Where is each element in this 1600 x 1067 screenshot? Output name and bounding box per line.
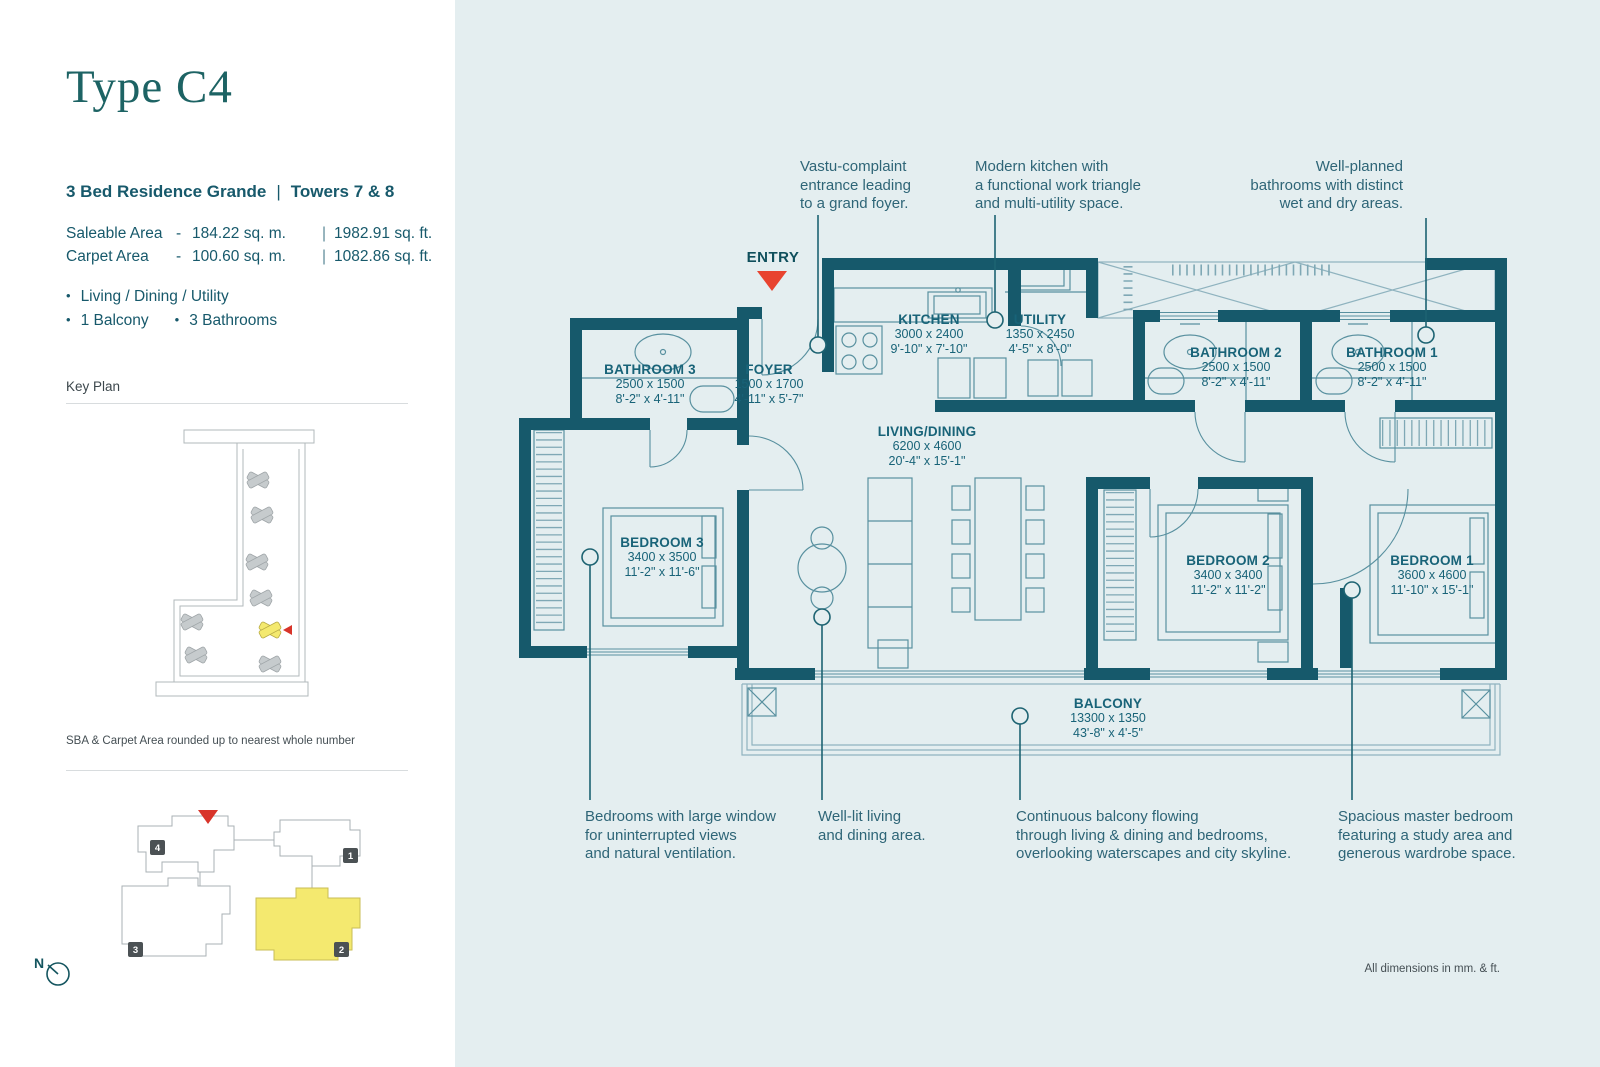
pipe: | xyxy=(314,225,334,243)
room-label-bedroom-1: BEDROOM 1 3600 x 4600 11'-10" x 15'-1" xyxy=(1390,553,1474,598)
annotation-bathrooms: Well-planned bathrooms with distinct wet… xyxy=(1203,158,1403,214)
carpet-area-imperial: 1082.86 sq. ft. xyxy=(334,248,432,266)
svg-text:4: 4 xyxy=(155,843,161,854)
room-label-kitchen: KITCHEN 3000 x 2400 9'-10" x 7'-10" xyxy=(891,312,968,357)
svg-text:N: N xyxy=(34,955,44,971)
feature-bathrooms: 3 Bathrooms xyxy=(189,312,277,329)
dash: - xyxy=(176,248,192,266)
carpet-area-label: Carpet Area xyxy=(66,248,176,266)
dimensions-note: All dimensions in mm. & ft. xyxy=(1200,963,1500,975)
annotation-master-bedroom: Spacious master bedroom featuring a stud… xyxy=(1338,808,1516,864)
entry-arrow-icon xyxy=(757,271,787,291)
features-line-1: •Living / Dining / Utility xyxy=(66,288,229,306)
north-indicator: N xyxy=(34,955,69,985)
room-label-bathroom-2: BATHROOM 2 2500 x 1500 8'-2" x 4'-11" xyxy=(1190,345,1282,390)
room-label-bathroom-1: BATHROOM 1 2500 x 1500 8'-2" x 4'-11" xyxy=(1346,345,1438,390)
saleable-area-label: Saleable Area xyxy=(66,225,176,243)
floor-plan xyxy=(519,215,1507,800)
room-label-living-dining: LIVING/DINING 6200 x 4600 20'-4" x 15'-1… xyxy=(878,424,977,469)
divider xyxy=(66,770,408,771)
svg-text:1: 1 xyxy=(348,851,354,862)
feature-balcony: 1 Balcony xyxy=(81,312,149,329)
residence-subtitle: 3 Bed Residence Grande|Towers 7 & 8 xyxy=(66,182,394,202)
site-location-arrow-icon xyxy=(283,625,292,635)
annotation-balcony: Continuous balcony flowing through livin… xyxy=(1016,808,1291,864)
carpet-area-metric: 100.60 sq. m. xyxy=(192,248,314,266)
site-key-plan xyxy=(156,430,314,696)
towers-label: Towers 7 & 8 xyxy=(291,182,395,201)
annotation-kitchen: Modern kitchen with a functional work tr… xyxy=(975,158,1141,214)
bullet-icon: • xyxy=(66,288,71,303)
bullet-icon: • xyxy=(175,312,180,327)
floor-key-plan: 4 1 3 2 xyxy=(122,810,360,960)
bullet-icon: • xyxy=(66,312,71,327)
residence-type: 3 Bed Residence Grande xyxy=(66,182,266,201)
site-buildings xyxy=(180,471,281,672)
carpet-area-row: Carpet Area - 100.60 sq. m. | 1082.86 sq… xyxy=(66,248,432,266)
annotation-living: Well-lit living and dining area. xyxy=(818,808,926,845)
saleable-area-metric: 184.22 sq. m. xyxy=(192,225,314,243)
saleable-area-imperial: 1982.91 sq. ft. xyxy=(334,225,432,243)
pipe: | xyxy=(314,248,334,266)
entry-label: ENTRY xyxy=(740,249,806,266)
room-label-bathroom-3: BATHROOM 3 2500 x 1500 8'-2" x 4'-11" xyxy=(604,362,696,407)
saleable-area-row: Saleable Area - 184.22 sq. m. | 1982.91 … xyxy=(66,225,432,243)
subtitle-separator: | xyxy=(276,182,280,201)
feature-living-dining-utility: Living / Dining / Utility xyxy=(81,288,229,305)
brochure-page: 4 1 3 2 N Type C4 3 Bed Residence Grande… xyxy=(0,0,1600,1067)
annotation-entrance: Vastu-complaint entrance leading to a gr… xyxy=(800,158,911,214)
room-label-foyer: FOYER 1500 x 1700 4'-11" x 5'-7" xyxy=(734,362,803,407)
room-label-balcony: BALCONY 13300 x 1350 43'-8" x 4'-5" xyxy=(1070,696,1146,741)
room-label-bedroom-3: BEDROOM 3 3400 x 3500 11'-2" x 11'-6" xyxy=(620,535,704,580)
annotation-bedrooms: Bedrooms with large window for uninterru… xyxy=(585,808,776,864)
room-label-utility: UTILITY 1350 x 2450 4'-5" x 8'-0" xyxy=(1006,312,1075,357)
key-plan-label: Key Plan xyxy=(66,379,120,394)
site-highlighted-building xyxy=(258,621,281,638)
room-label-bedroom-2: BEDROOM 2 3400 x 3400 11'-2" x 11'-2" xyxy=(1186,553,1270,598)
features-line-2: •1 Balcony•3 Bathrooms xyxy=(66,312,277,330)
page-title: Type C4 xyxy=(66,60,233,114)
svg-text:2: 2 xyxy=(339,945,344,956)
dash: - xyxy=(176,225,192,243)
sba-note: SBA & Carpet Area rounded up to nearest … xyxy=(66,735,355,747)
divider xyxy=(66,403,408,404)
svg-text:3: 3 xyxy=(133,945,138,956)
